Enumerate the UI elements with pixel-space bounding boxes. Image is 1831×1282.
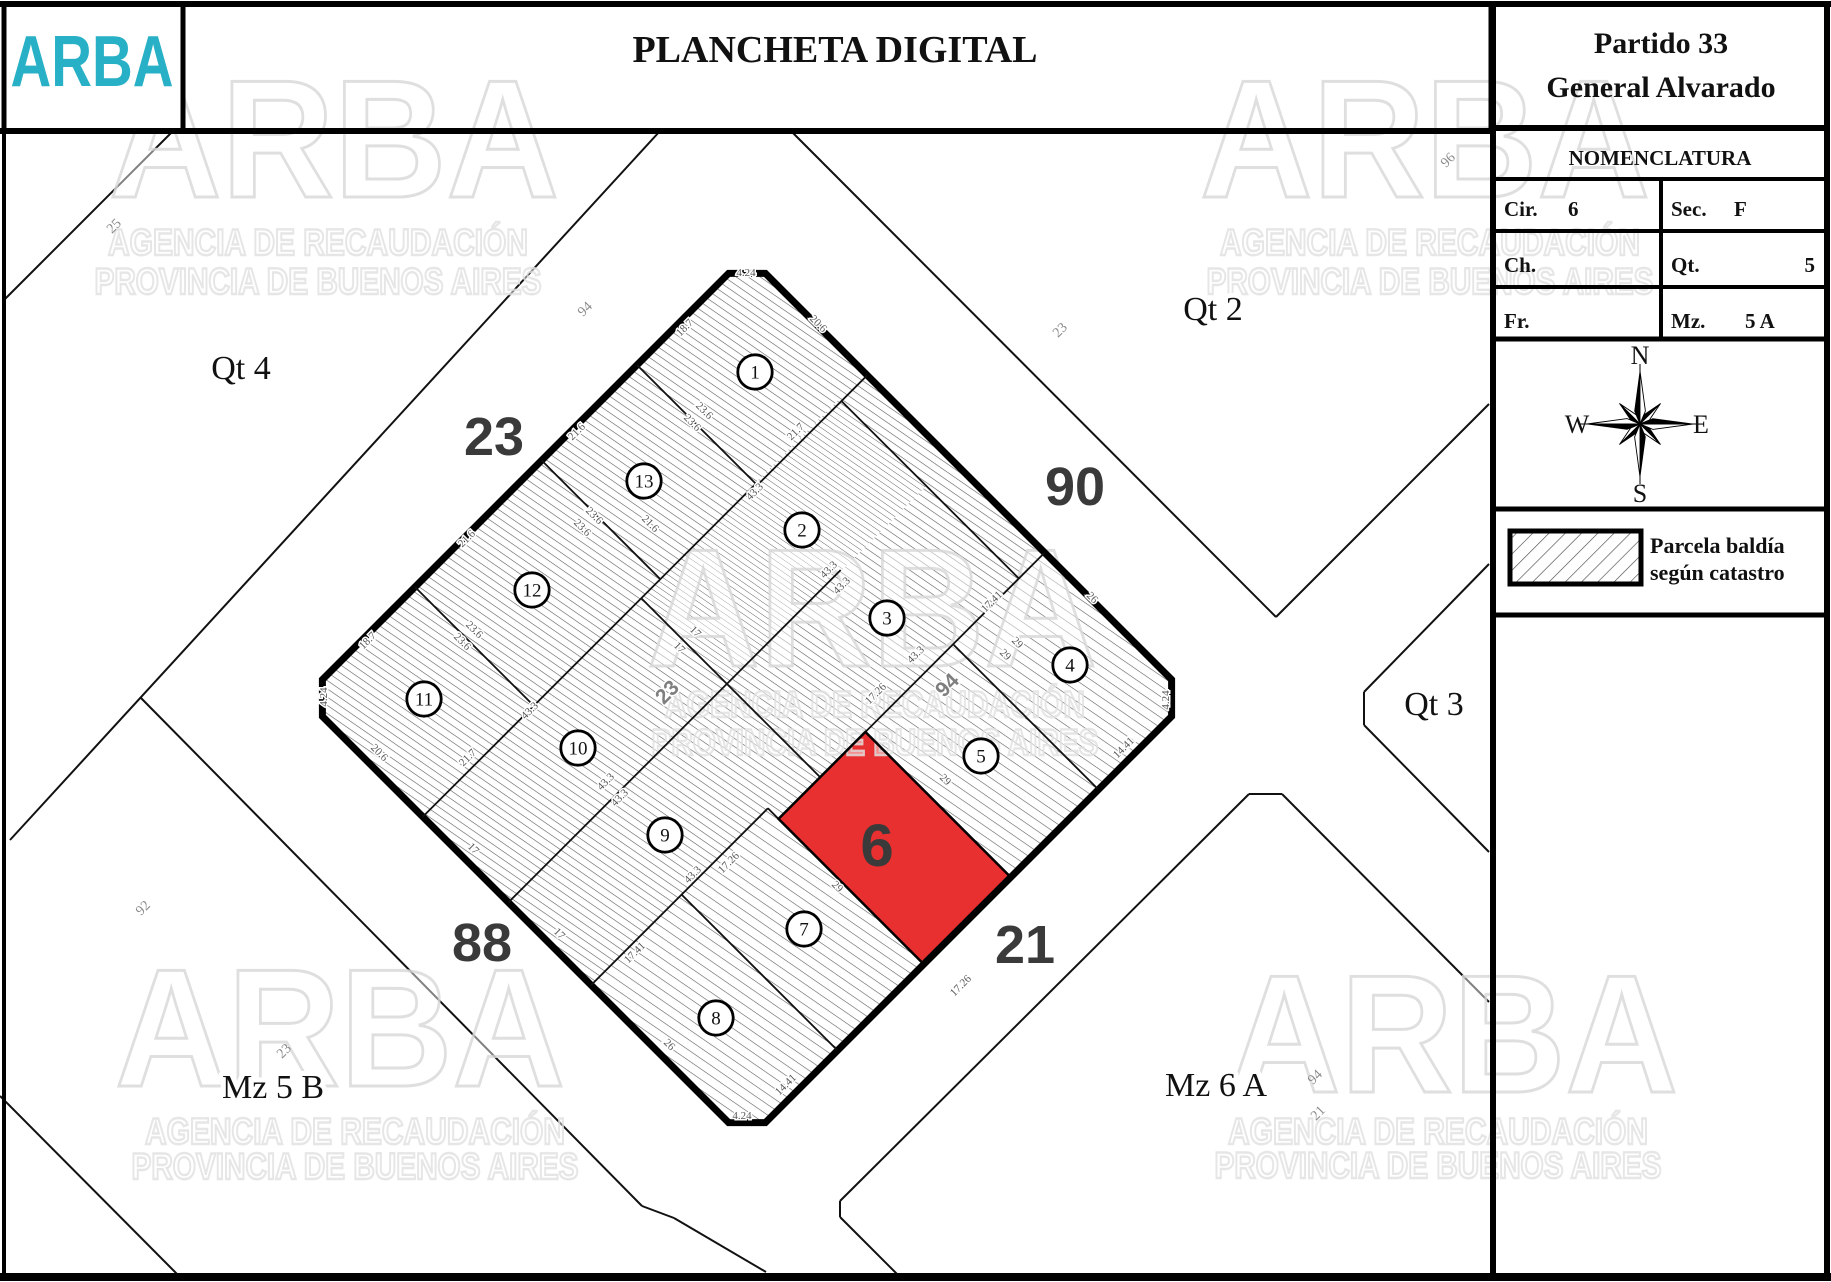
svg-text:Qt.: Qt. [1671,253,1700,277]
svg-text:4: 4 [1065,656,1075,677]
svg-text:F: F [1734,197,1747,221]
svg-text:Partido 33: Partido 33 [1594,27,1728,60]
svg-text:PROVINCIA DE BUENOS AIRES: PROVINCIA DE BUENOS AIRES [1207,261,1654,302]
svg-text:PROVINCIA DE BUENOS AIRES: PROVINCIA DE BUENOS AIRES [95,261,542,302]
svg-text:Sec.: Sec. [1671,197,1707,221]
svg-text:4.24: 4.24 [1160,690,1172,710]
svg-text:según catastro: según catastro [1650,560,1785,585]
svg-text:PROVINCIA DE BUENOS AIRES: PROVINCIA DE BUENOS AIRES [132,1146,579,1187]
svg-text:88: 88 [452,913,512,973]
svg-text:21: 21 [995,915,1055,975]
svg-text:9: 9 [660,826,670,847]
svg-text:AGENCIA DE RECAUDACIÓN: AGENCIA DE RECAUDACIÓN [108,221,528,263]
svg-text:Mz 6 A: Mz 6 A [1165,1067,1267,1104]
svg-text:Fr.: Fr. [1504,309,1529,333]
svg-text:N: N [1631,341,1650,370]
svg-text:23: 23 [464,407,524,467]
svg-text:11: 11 [415,690,433,711]
svg-text:NOMENCLATURA: NOMENCLATURA [1569,146,1753,170]
svg-text:1: 1 [750,363,760,384]
svg-text:Ch.: Ch. [1504,253,1536,277]
svg-text:12: 12 [523,581,542,602]
svg-text:7: 7 [799,920,809,941]
svg-text:2: 2 [797,521,807,542]
svg-text:PLANCHETA DIGITAL: PLANCHETA DIGITAL [632,29,1037,71]
svg-text:4.24: 4.24 [736,267,756,279]
svg-text:General Alvarado: General Alvarado [1546,71,1775,104]
svg-text:Mz 5 B: Mz 5 B [222,1069,324,1106]
svg-text:90: 90 [1045,457,1105,517]
svg-text:ARBA: ARBA [1228,940,1678,1128]
svg-text:4.24: 4.24 [732,1110,752,1122]
svg-text:3: 3 [882,609,892,630]
svg-text:5: 5 [976,747,986,768]
svg-text:Parcela baldía: Parcela baldía [1650,533,1785,558]
svg-text:Cir.: Cir. [1504,197,1538,221]
svg-text:5 A: 5 A [1745,309,1776,333]
svg-text:Qt 2: Qt 2 [1183,291,1243,328]
svg-text:Qt 3: Qt 3 [1404,686,1464,723]
svg-text:E: E [1693,410,1709,439]
svg-text:10: 10 [569,739,588,760]
svg-text:S: S [1633,479,1647,508]
svg-text:13: 13 [635,472,654,493]
svg-text:AGENCIA DE RECAUDACIÓN: AGENCIA DE RECAUDACIÓN [1220,221,1640,263]
svg-text:8: 8 [711,1009,721,1030]
svg-text:Mz.: Mz. [1671,309,1705,333]
svg-text:Qt 4: Qt 4 [211,350,271,387]
svg-text:6: 6 [1568,197,1579,221]
svg-text:W: W [1565,410,1590,439]
svg-text:PROVINCIA DE BUENOS AIRES: PROVINCIA DE BUENOS AIRES [1215,1145,1662,1186]
svg-text:ARBA: ARBA [11,22,174,102]
svg-text:5: 5 [1805,253,1816,277]
svg-text:6: 6 [860,812,893,879]
svg-text:4.24: 4.24 [318,687,330,707]
